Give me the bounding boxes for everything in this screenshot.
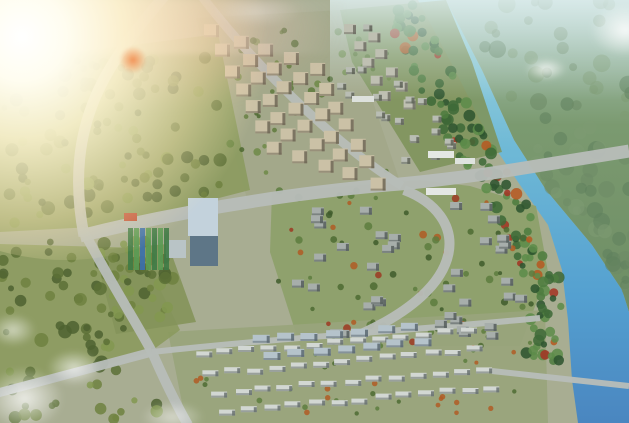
building-shadow (372, 341, 388, 343)
park-tree (276, 279, 281, 284)
building-shadow (196, 355, 212, 357)
far-bank-tree (612, 232, 626, 246)
building-shadow (314, 354, 331, 356)
building-shadow (337, 249, 349, 251)
park-tree (124, 152, 131, 159)
white-slab-1 (428, 151, 454, 158)
building-shadow (367, 269, 379, 271)
building-shadow (373, 99, 382, 101)
park-tree (38, 199, 45, 206)
riverfront-tree (541, 341, 547, 347)
garden-court-stripe (128, 228, 133, 270)
park-tree (117, 408, 125, 416)
building-shadow (344, 32, 356, 34)
building-shadow (310, 74, 325, 76)
park-tree (137, 148, 145, 156)
building-shadow (351, 150, 366, 152)
park-tree (439, 396, 444, 401)
park-tree (6, 368, 14, 376)
park-tree (215, 181, 222, 188)
park-tree (419, 231, 427, 239)
park-tree (117, 264, 124, 271)
park-tree (131, 179, 139, 187)
building-shadow (298, 131, 313, 133)
far-bank-tree (563, 198, 571, 206)
riverfront-tree (511, 188, 523, 200)
park-tree (85, 340, 95, 350)
far-bank-tree (598, 224, 612, 238)
building-shadow (467, 349, 483, 351)
park-tree (170, 185, 181, 196)
riverfront-tree (550, 295, 557, 302)
aerial-rendering (0, 0, 629, 423)
building-shadow (418, 103, 427, 105)
park-tree (144, 56, 155, 67)
white-slab-3 (426, 188, 456, 195)
building-shadow (324, 142, 339, 144)
riverfront-tree (537, 261, 545, 269)
park-tree (103, 339, 110, 346)
park-tree (132, 134, 141, 143)
building-shadow (454, 373, 470, 375)
building-shadow (251, 83, 266, 85)
park-tree (253, 148, 261, 156)
building-shadow (300, 339, 317, 341)
park-tree (463, 359, 467, 363)
park-tree (355, 411, 359, 415)
building-shadow (433, 376, 449, 378)
building-shadow (389, 380, 405, 382)
building-shadow (333, 160, 348, 162)
building-shadow (339, 129, 354, 131)
building-shadow (445, 144, 454, 146)
riverfront-tree (522, 254, 530, 262)
park-tree (16, 163, 28, 175)
park-tree (160, 272, 171, 283)
park-tree (430, 299, 438, 307)
park-tree (454, 400, 459, 405)
riverfront-tree (526, 236, 532, 242)
far-bank-tree (574, 127, 586, 139)
building-shadow (445, 354, 461, 356)
building-shadow (401, 356, 417, 358)
park-tree (61, 164, 71, 174)
building-shadow (411, 377, 427, 379)
riverfront-tree (474, 124, 482, 132)
far-bank-tree (605, 256, 621, 272)
park-tree (291, 40, 299, 48)
park-tree (330, 236, 337, 243)
park-tree (74, 58, 81, 65)
park-tree (355, 295, 360, 300)
park-tree (148, 270, 157, 279)
park-tree (440, 307, 444, 311)
building-shadow (345, 384, 361, 386)
building-shadow (312, 213, 324, 215)
park-tree (151, 84, 160, 93)
building-shadow (410, 141, 419, 143)
building-shadow (291, 367, 307, 369)
park-tree (114, 102, 123, 111)
park-tree (5, 143, 18, 156)
building-shadow (270, 123, 285, 125)
building-shadow (243, 65, 258, 67)
park-tree (347, 201, 351, 205)
park-tree (364, 222, 372, 230)
building-shadow (219, 414, 235, 416)
building-shadow (260, 349, 276, 351)
riverfront-tree (511, 231, 521, 241)
building-shadow (450, 322, 462, 324)
park-tree (201, 191, 207, 197)
park-tree (204, 377, 209, 382)
park-tree (122, 193, 133, 204)
building-shadow (328, 113, 343, 115)
riverfront-tree (545, 327, 555, 337)
building-shadow (401, 162, 410, 164)
building-shadow (236, 95, 251, 97)
park-tree (83, 324, 90, 331)
park-tree (149, 294, 157, 302)
park-tree (15, 295, 27, 307)
park-tree (194, 378, 200, 384)
park-tree (519, 304, 525, 310)
park-tree (262, 144, 267, 149)
park-tree (3, 329, 9, 335)
building-shadow (358, 72, 367, 74)
park-tree (326, 212, 332, 218)
building-shadow (433, 121, 442, 123)
building-shadow (292, 286, 304, 288)
building-shadow (497, 241, 509, 243)
building-shadow (371, 189, 386, 191)
park-tree (36, 211, 43, 218)
riverfront-tree (554, 355, 564, 365)
office-tower-face (190, 236, 218, 266)
park-tree (436, 403, 441, 408)
park-tree (330, 225, 335, 230)
park-tree (199, 52, 211, 64)
park-tree (105, 89, 115, 99)
riverfront-tree (504, 190, 511, 197)
park-tree (108, 253, 118, 263)
building-shadow (284, 63, 299, 65)
park-tree (93, 179, 104, 190)
park-tree (112, 306, 118, 312)
building-shadow (371, 84, 383, 86)
building-shadow (354, 49, 366, 51)
park-tree (152, 192, 163, 203)
building-shadow (363, 349, 380, 351)
park-tree (162, 302, 173, 313)
park-tree (494, 271, 499, 276)
park-tree (203, 382, 208, 387)
building-shadow (332, 404, 348, 406)
building-shadow (276, 389, 292, 391)
riverfront-tree (479, 158, 487, 166)
building-shadow (319, 171, 334, 173)
far-bank-tree (598, 181, 615, 198)
riverfront-tree (529, 244, 538, 253)
park-tree (308, 276, 312, 280)
park-tree (94, 120, 102, 128)
park-tree (413, 287, 418, 292)
building-shadow (351, 335, 368, 337)
park-tree (289, 228, 293, 232)
park-tree (479, 261, 485, 267)
park-tree (121, 176, 128, 183)
park-tree (18, 64, 27, 73)
building-shadow (311, 221, 323, 223)
building-shadow (459, 335, 471, 337)
park-tree (390, 271, 397, 278)
park-tree (103, 118, 111, 126)
park-tree (498, 271, 502, 275)
riverfront-tree (464, 110, 476, 122)
park-tree (19, 106, 30, 117)
far-bank-tree (551, 187, 562, 198)
park-tree (310, 307, 314, 311)
far-bank-tree (540, 112, 552, 124)
park-tree (147, 285, 154, 292)
building-shadow (215, 55, 230, 57)
park-tree (350, 262, 357, 269)
park-tree (424, 243, 431, 250)
riverfront-tree (544, 310, 553, 319)
park-tree (511, 350, 516, 355)
park-tree (93, 63, 100, 70)
park-tree (226, 140, 234, 148)
park-tree (468, 229, 474, 235)
building-shadow (501, 284, 513, 286)
park-tree (25, 179, 31, 185)
office-tower-roof (188, 198, 218, 236)
building-shadow (394, 86, 403, 88)
building-shadow (375, 57, 387, 59)
riverfront-tree (528, 346, 538, 356)
far-bank-tree (620, 111, 629, 120)
park-tree (52, 267, 63, 278)
building-shadow (406, 102, 415, 104)
park-tree (504, 227, 510, 233)
building-shadow (380, 358, 396, 360)
park-tree (61, 139, 68, 146)
park-tree (120, 241, 127, 248)
building-shadow (496, 252, 508, 254)
building-shadow (418, 394, 434, 396)
park-tree (95, 403, 107, 415)
riverfront-tree (524, 228, 532, 236)
riverfront-tree (514, 252, 522, 260)
park-tree (191, 159, 201, 169)
building-shadow (488, 221, 500, 223)
park-tree (119, 162, 126, 169)
park-tree (370, 282, 378, 290)
building-shadow (343, 178, 358, 180)
building-shadow (437, 332, 453, 334)
building-shadow (315, 119, 330, 121)
park-tree (214, 153, 227, 166)
park-tree (10, 93, 23, 106)
building-shadow (432, 133, 441, 135)
park-tree (474, 361, 478, 365)
building-shadow (313, 366, 329, 368)
park-tree (193, 86, 204, 97)
park-tree (114, 124, 122, 132)
building-shadow (321, 385, 337, 387)
building-shadow (396, 90, 408, 92)
building-shadow (255, 131, 270, 133)
park-tree (528, 301, 533, 306)
park-tree (264, 170, 269, 175)
riverfront-tree (538, 251, 548, 261)
park-tree (133, 88, 146, 101)
garden-court-stripe (158, 228, 163, 270)
building-shadow (284, 405, 300, 407)
park-tree (404, 210, 409, 215)
riverfront-tree (448, 100, 459, 111)
building-shadow (360, 213, 372, 215)
far-bank-tree (572, 100, 582, 110)
building-shadow (363, 308, 375, 310)
white-slab-2 (455, 158, 475, 164)
riverfront-tree (437, 101, 444, 108)
building-shadow (287, 355, 304, 357)
far-bank-tree (576, 183, 587, 194)
park-tree (151, 405, 163, 417)
building-shadow (310, 149, 325, 151)
park-tree (25, 367, 35, 377)
far-bank-tree (533, 144, 542, 153)
building-shadow (459, 305, 471, 307)
riverfront-tree (485, 148, 497, 160)
park-tree (8, 285, 14, 291)
building-shadow (289, 114, 304, 116)
park-tree (272, 128, 277, 133)
building-shadow (236, 393, 252, 395)
park-tree (488, 406, 493, 411)
building-shadow (504, 299, 516, 301)
building-shadow (351, 403, 367, 405)
park-tree (143, 192, 153, 202)
building-shadow (401, 329, 418, 331)
park-tree (131, 397, 137, 403)
building-shadow (292, 161, 307, 163)
park-tree (4, 56, 11, 63)
park-tree (34, 333, 48, 347)
building-shadow (480, 243, 492, 245)
building-shadow (483, 390, 499, 392)
park-tree (80, 65, 87, 72)
park-tree (45, 248, 53, 256)
park-tree (463, 271, 469, 277)
building-shadow (277, 92, 292, 94)
white-slab-4 (352, 96, 374, 102)
park-tree (211, 100, 222, 111)
park-tree (135, 109, 142, 116)
building-shadow (381, 119, 390, 121)
building-shadow (463, 392, 479, 394)
park-tree (95, 330, 104, 339)
building-shadow (304, 103, 319, 105)
riverfront-tree (516, 204, 525, 213)
park-tree (4, 188, 16, 200)
park-tree (154, 312, 165, 323)
park-tree (373, 240, 378, 245)
building-shadow (258, 55, 273, 57)
park-tree (21, 278, 31, 288)
building-shadow (368, 40, 380, 42)
building-shadow (443, 290, 455, 292)
building-shadow (337, 88, 346, 90)
park-tree (56, 321, 65, 330)
park-tree (49, 402, 56, 409)
park-tree (529, 270, 536, 277)
park-tree (132, 78, 142, 88)
building-shadow (371, 302, 383, 304)
park-tree (326, 322, 331, 327)
park-tree (30, 409, 42, 421)
building-shadow (395, 123, 404, 125)
riverfront-tree (460, 139, 470, 149)
riverfront-tree (557, 303, 564, 310)
garden-court-stripe (140, 228, 145, 270)
building-shadow (426, 354, 442, 356)
park-tree (97, 303, 107, 313)
building-shadow (485, 329, 497, 331)
building-shadow (202, 374, 218, 376)
building-shadow (374, 304, 386, 306)
park-tree (486, 276, 494, 284)
park-tree (281, 28, 287, 34)
riverfront-tree (531, 284, 540, 293)
park-tree (370, 391, 375, 396)
park-tree (55, 110, 65, 120)
park-tree (57, 86, 68, 97)
park-tree (18, 137, 27, 146)
building-shadow (376, 237, 388, 239)
park-tree (452, 195, 460, 203)
park-tree (66, 321, 79, 334)
riverfront-tree (519, 269, 528, 278)
garden-court-stripe (152, 228, 157, 270)
park-tree (87, 382, 94, 389)
building-shadow (238, 350, 254, 352)
building-shadow (356, 360, 372, 362)
riverfront-tree (469, 137, 478, 146)
park-tree (19, 409, 31, 421)
park-tree (454, 411, 459, 416)
park-tree (375, 406, 379, 410)
park-tree (1, 105, 7, 111)
park-tree (20, 186, 30, 196)
building-shadow (270, 370, 286, 372)
building-shadow (476, 371, 492, 373)
park-tree (168, 75, 179, 86)
building-shadow (382, 251, 394, 253)
park-tree (108, 311, 114, 317)
building-shadow (415, 344, 432, 346)
park-tree (47, 239, 54, 246)
building-shadow (450, 208, 462, 210)
building-shadow (265, 409, 281, 411)
building-shadow (241, 410, 257, 412)
building-shadow (224, 371, 240, 373)
building-shadow (281, 140, 296, 142)
park-tree (45, 291, 55, 301)
park-tree (374, 196, 378, 200)
building-shadow (204, 35, 219, 37)
